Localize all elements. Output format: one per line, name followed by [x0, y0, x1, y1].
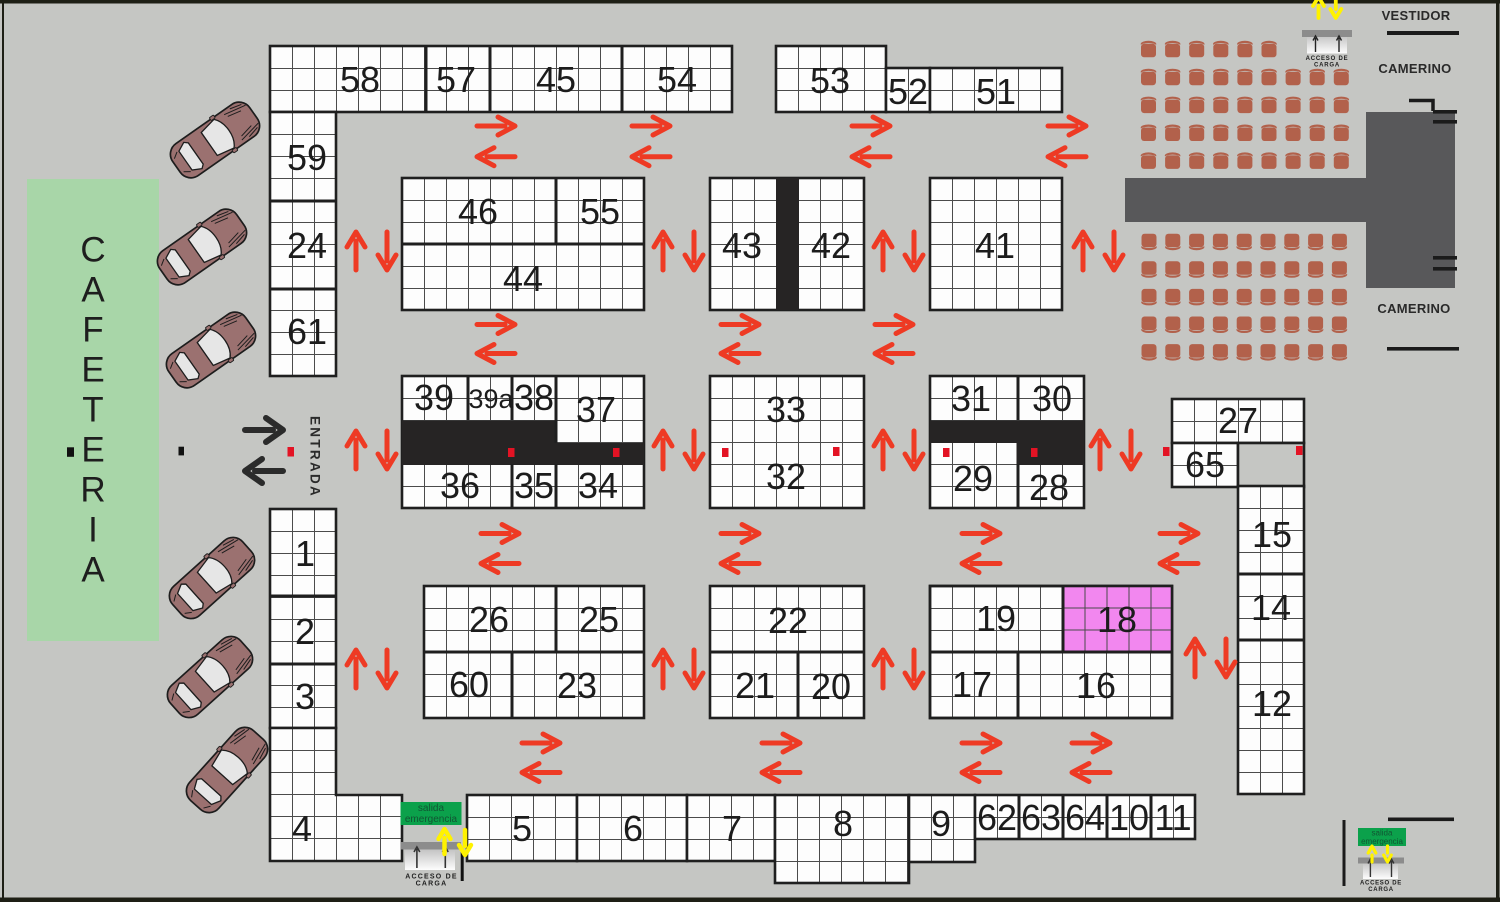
- svg-text:8: 8: [833, 803, 853, 844]
- svg-text:15: 15: [1252, 514, 1292, 555]
- svg-text:60: 60: [449, 664, 489, 705]
- svg-text:55: 55: [580, 191, 620, 232]
- svg-text:14: 14: [1251, 587, 1291, 628]
- svg-text:5: 5: [512, 808, 532, 849]
- svg-text:CARGA: CARGA: [1368, 887, 1394, 893]
- svg-text:58: 58: [340, 59, 380, 100]
- svg-text:33: 33: [766, 389, 806, 430]
- svg-text:25: 25: [579, 599, 619, 640]
- svg-text:11: 11: [1154, 797, 1191, 838]
- svg-text:CARGA: CARGA: [1314, 63, 1340, 69]
- svg-text:12: 12: [1252, 683, 1292, 724]
- svg-text:30: 30: [1032, 378, 1072, 419]
- svg-text:54: 54: [657, 59, 697, 100]
- svg-text:45: 45: [536, 59, 576, 100]
- svg-text:42: 42: [811, 225, 851, 266]
- svg-text:52: 52: [888, 71, 928, 112]
- svg-text:emergencia: emergencia: [405, 814, 458, 825]
- svg-text:53: 53: [810, 60, 850, 101]
- svg-text:44: 44: [503, 258, 543, 299]
- svg-text:18: 18: [1097, 599, 1137, 640]
- svg-text:2: 2: [295, 611, 315, 652]
- svg-text:6: 6: [623, 808, 643, 849]
- svg-text:64: 64: [1065, 797, 1105, 838]
- svg-text:I: I: [88, 511, 98, 550]
- svg-text:16: 16: [1076, 665, 1116, 706]
- svg-text:46: 46: [458, 191, 498, 232]
- svg-text:61: 61: [287, 311, 327, 352]
- svg-text:1: 1: [295, 533, 315, 574]
- svg-text:36: 36: [440, 465, 480, 506]
- svg-text:59: 59: [287, 137, 327, 178]
- svg-text:63: 63: [1021, 797, 1061, 838]
- svg-text:E: E: [81, 431, 104, 470]
- svg-text:22: 22: [768, 600, 808, 641]
- svg-text:35: 35: [514, 465, 554, 506]
- svg-text:10: 10: [1109, 797, 1149, 838]
- svg-text:62: 62: [977, 797, 1017, 838]
- svg-text:20: 20: [811, 666, 851, 707]
- svg-text:34: 34: [578, 465, 618, 506]
- svg-text:7: 7: [722, 808, 742, 849]
- svg-text:3: 3: [295, 676, 315, 717]
- svg-text:F: F: [82, 311, 103, 350]
- svg-text:31: 31: [951, 378, 991, 419]
- svg-text:39a: 39a: [468, 384, 514, 414]
- svg-text:ENTRADA: ENTRADA: [308, 416, 323, 498]
- svg-text:32: 32: [766, 456, 806, 497]
- svg-text:51: 51: [976, 71, 1016, 112]
- svg-text:T: T: [82, 391, 103, 430]
- svg-text:ACCESO DE: ACCESO DE: [405, 874, 457, 881]
- svg-text:C: C: [80, 231, 105, 270]
- svg-text:37: 37: [576, 389, 616, 430]
- svg-text:43: 43: [722, 225, 762, 266]
- svg-text:17: 17: [952, 664, 992, 705]
- svg-text:28: 28: [1029, 467, 1069, 508]
- svg-text:57: 57: [436, 59, 476, 100]
- svg-text:19: 19: [976, 598, 1016, 639]
- svg-text:21: 21: [735, 665, 775, 706]
- svg-text:4: 4: [292, 808, 312, 849]
- svg-text:emergencia: emergencia: [1361, 837, 1403, 846]
- svg-text:A: A: [81, 551, 105, 590]
- svg-text:CAMERINO: CAMERINO: [1377, 301, 1450, 316]
- svg-text:23: 23: [557, 665, 597, 706]
- svg-text:ACCESO DE: ACCESO DE: [1360, 881, 1402, 887]
- svg-text:26: 26: [469, 599, 509, 640]
- svg-text:E: E: [81, 351, 104, 390]
- svg-text:R: R: [80, 471, 105, 510]
- svg-text:27: 27: [1218, 400, 1258, 441]
- svg-text:salida: salida: [418, 803, 445, 814]
- svg-text:65: 65: [1185, 444, 1225, 485]
- svg-text:39: 39: [414, 377, 454, 418]
- svg-text:24: 24: [287, 225, 327, 266]
- svg-text:VESTIDOR: VESTIDOR: [1382, 8, 1451, 23]
- svg-text:CARGA: CARGA: [416, 881, 448, 888]
- svg-text:CAMERINO: CAMERINO: [1378, 61, 1451, 76]
- svg-text:9: 9: [931, 803, 951, 844]
- svg-text:A: A: [81, 271, 105, 310]
- svg-text:ACCESO DE: ACCESO DE: [1306, 56, 1349, 62]
- svg-text:38: 38: [514, 377, 554, 418]
- svg-text:41: 41: [975, 225, 1015, 266]
- svg-text:29: 29: [953, 458, 993, 499]
